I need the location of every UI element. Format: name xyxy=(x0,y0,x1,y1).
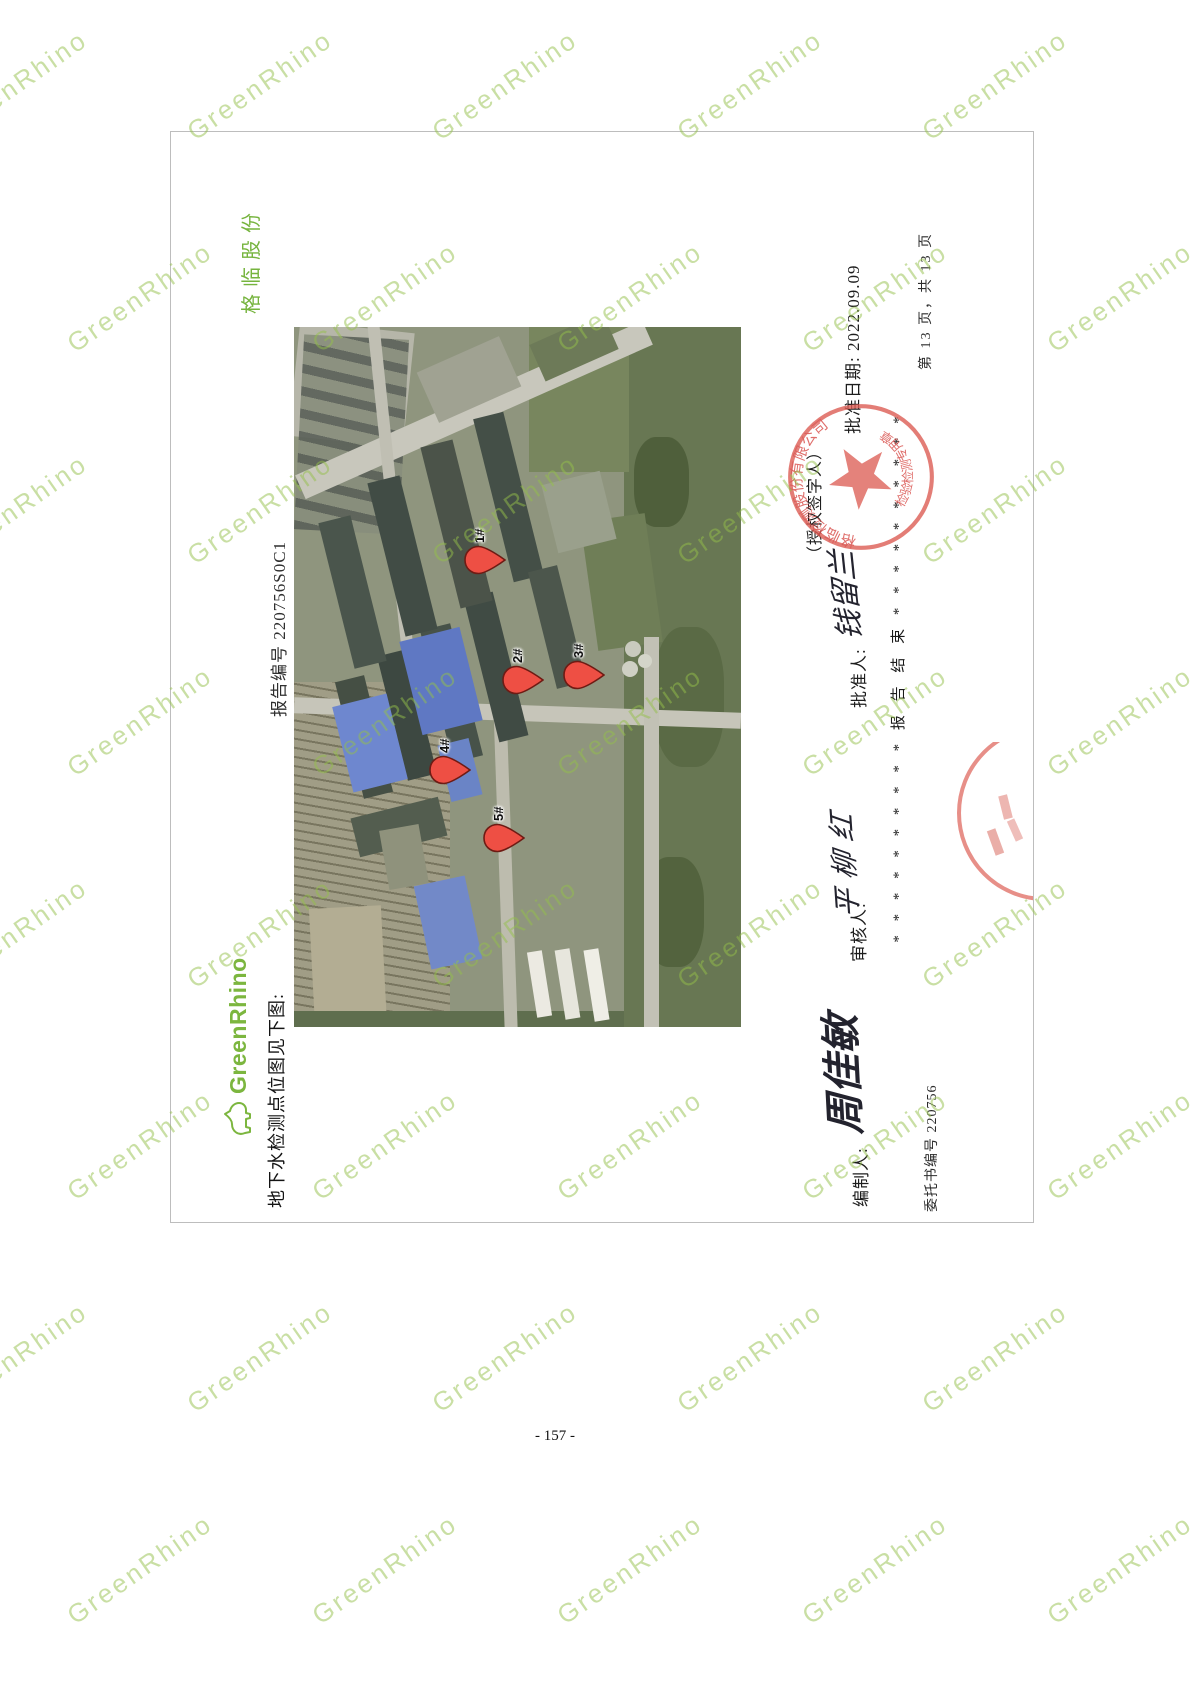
pin-label: 1# xyxy=(472,529,487,543)
logo-text: GreenRhino xyxy=(225,957,252,1094)
greenrhino-watermark: GreenRhino xyxy=(672,1296,829,1419)
preparer-label: 编制人: xyxy=(847,1147,872,1207)
greenrhino-watermark: GreenRhino xyxy=(797,1508,954,1631)
svg-text:格临检测股份有限公司: 格临检测股份有限公司 xyxy=(774,415,861,561)
greenrhino-watermark: GreenRhino xyxy=(1042,1508,1199,1631)
greenrhino-watermark: GreenRhino xyxy=(62,1508,219,1631)
satellite-map: 1#2#3#4#5# xyxy=(294,327,741,1027)
pin-label: 2# xyxy=(510,649,525,663)
map-building xyxy=(420,439,492,608)
pin-icon xyxy=(483,823,525,853)
map-pad xyxy=(309,905,387,1027)
pdf-page-number: - 157 - xyxy=(495,1428,615,1445)
map-pin-5: 5# xyxy=(483,823,525,853)
map-pin-4: 4# xyxy=(429,755,471,785)
map-pin-1: 1# xyxy=(464,545,506,575)
company-seal: 格临检测股份有限公司 检验检测专用章 xyxy=(768,384,955,571)
greenrhino-watermark: GreenRhino xyxy=(307,1508,464,1631)
seal-star xyxy=(822,440,895,515)
map-grove xyxy=(654,627,724,767)
page-count-info: 第 13 页，共 13 页 xyxy=(915,232,935,370)
report-sheet: GreenRhino 地下水检测点位图见下图: 报告编号 220756S0C1 … xyxy=(170,131,1034,1223)
pin-icon xyxy=(464,545,506,575)
greenrhino-watermark: GreenRhino xyxy=(552,1508,709,1631)
map-road xyxy=(644,637,659,1027)
pin-icon xyxy=(563,660,605,690)
map-white-building xyxy=(527,950,552,1018)
greenrhino-watermark: GreenRhino xyxy=(0,1296,94,1419)
greenrhino-watermark: GreenRhino xyxy=(917,24,1074,147)
map-tank xyxy=(625,641,641,657)
greenrhino-watermark: GreenRhino xyxy=(917,1296,1074,1419)
report-end-line: * * * * * * * * * * 报 告 结 束 * * * * * * … xyxy=(887,152,908,1202)
greenrhino-watermark: GreenRhino xyxy=(427,24,584,147)
map-pin-2: 2# xyxy=(502,665,544,695)
partial-seal-arc xyxy=(957,742,1033,901)
greenrhino-watermark: GreenRhino xyxy=(0,24,94,147)
pin-icon xyxy=(429,755,471,785)
seal-company-text: 格临检测股份有限公司 xyxy=(774,415,861,561)
greenrhino-watermark: GreenRhino xyxy=(1042,236,1199,359)
greenrhino-watermark: GreenRhino xyxy=(182,1296,339,1419)
map-white-building xyxy=(555,948,581,1019)
rotated-content: GreenRhino 地下水检测点位图见下图: 报告编号 220756S0C1 … xyxy=(171,132,1033,1222)
greenrhino-watermark: GreenRhino xyxy=(0,448,94,571)
report-number: 报告编号 220756S0C1 xyxy=(265,541,290,717)
approver-label: 批准人: xyxy=(845,648,870,708)
map-tank xyxy=(638,654,652,668)
preparer-signature: 周佳敏 xyxy=(808,1014,872,1135)
pin-label: 3# xyxy=(571,644,586,658)
greenrhino-watermark: GreenRhino xyxy=(427,1296,584,1419)
brand-name: 格临股份 xyxy=(235,206,264,314)
pin-label: 4# xyxy=(437,739,452,753)
greenrhino-watermark: GreenRhino xyxy=(182,24,339,147)
reviewer-signature: 平柳红 xyxy=(819,801,867,919)
greenrhino-watermark: GreenRhino xyxy=(1042,660,1199,783)
greenrhino-watermark: GreenRhino xyxy=(672,24,829,147)
map-pin-3: 3# xyxy=(563,660,605,690)
greenrhino-watermark: GreenRhino xyxy=(0,872,94,995)
greenrhino-logo: GreenRhino xyxy=(221,957,255,1138)
map-caption: 地下水检测点位图见下图: xyxy=(263,993,289,1208)
map-road xyxy=(493,702,518,1027)
map-building xyxy=(318,515,386,669)
map-building xyxy=(367,475,437,636)
map-building xyxy=(541,471,616,553)
greenrhino-watermark: GreenRhino xyxy=(1042,1084,1199,1207)
rhino-icon xyxy=(223,1100,253,1138)
pin-label: 5# xyxy=(491,807,506,821)
map-tank xyxy=(622,661,638,677)
pin-icon xyxy=(502,665,544,695)
commission-number: 委托书编号 220756 xyxy=(921,1085,941,1213)
partial-seal xyxy=(949,742,1033,907)
scanned-report-page: GreenRhino 地下水检测点位图见下图: 报告编号 220756S0C1 … xyxy=(0,0,1199,1696)
